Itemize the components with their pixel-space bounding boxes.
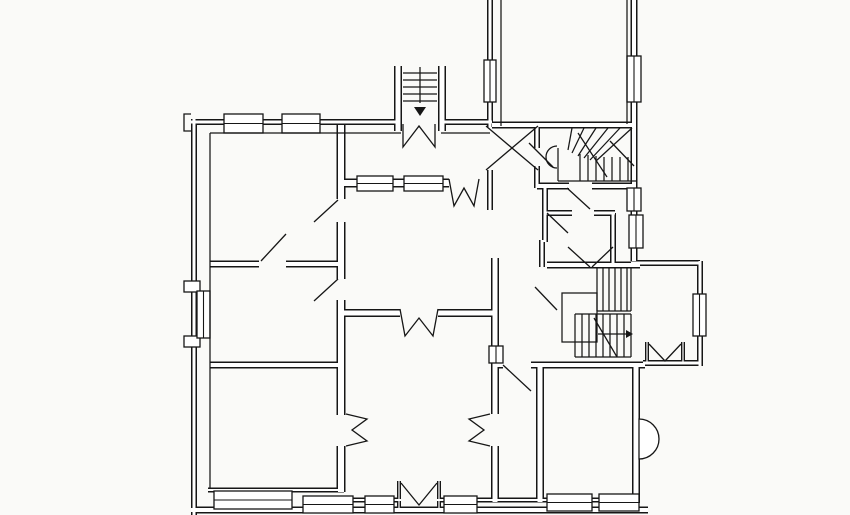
opening-zigzag	[401, 483, 437, 505]
door-leaf	[314, 200, 338, 222]
arrow-layer	[414, 107, 633, 338]
stair-arrow-head	[414, 107, 426, 116]
door-leaf	[567, 188, 590, 209]
floor-plan-svg	[0, 0, 850, 515]
outline-rect-layer	[562, 293, 597, 342]
detail-line-layer	[210, 0, 636, 489]
detail-line	[578, 128, 596, 156]
floor-plan-sheet	[0, 0, 850, 515]
opening-zigzag	[400, 309, 438, 336]
door-leaf	[610, 141, 634, 166]
curved-element	[639, 419, 659, 459]
detail-line	[568, 128, 572, 150]
door-leaf	[261, 234, 286, 261]
walls-outline-layer	[191, 0, 700, 515]
door-leaf	[535, 287, 557, 310]
opening-zigzag	[649, 344, 681, 361]
opening-zigzag	[469, 414, 490, 446]
stair-landing	[562, 293, 597, 342]
opening-zigzag	[346, 414, 367, 446]
door-leaf-layer	[261, 126, 634, 391]
door-leaf	[314, 279, 338, 301]
opening-zigzag	[449, 179, 479, 206]
opening-zigzag	[184, 114, 191, 131]
opening-zigzag	[403, 124, 435, 147]
opening-zigzag-layer	[184, 114, 681, 505]
door-leaf	[503, 365, 531, 391]
stair-arrow-head	[626, 330, 633, 338]
door-leaf	[529, 143, 553, 167]
